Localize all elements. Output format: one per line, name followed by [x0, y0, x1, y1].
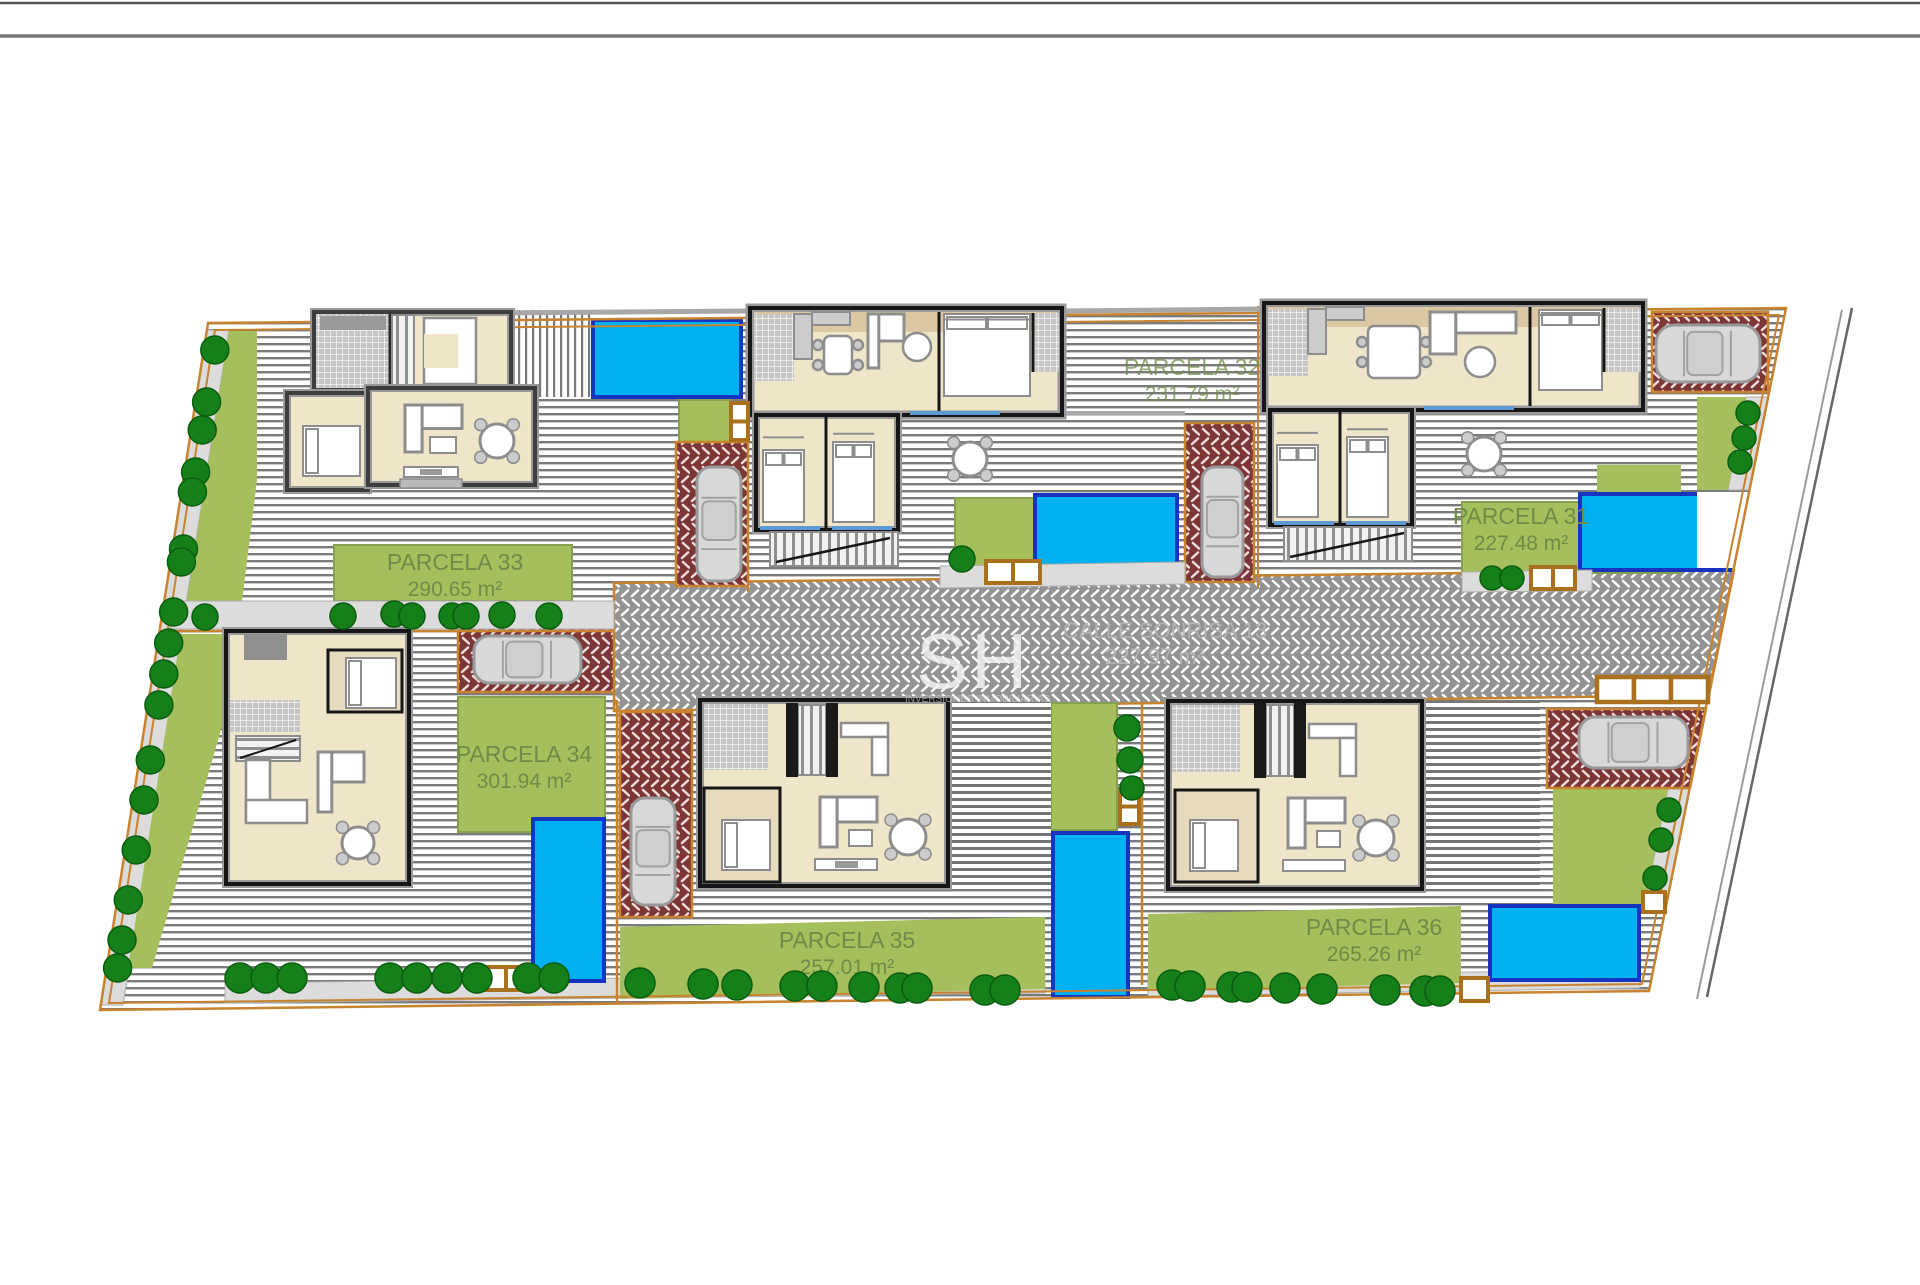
svg-text:PARCELA 36: PARCELA 36	[1306, 914, 1442, 940]
svg-text:INVERSIONES INMOBILIARIAS: INVERSIONES INMOBILIARIAS	[905, 694, 1050, 705]
svg-text:301.94 m²: 301.94 m²	[477, 770, 572, 793]
svg-text:227.97 m²: 227.97 m²	[1105, 644, 1204, 669]
svg-text:265.26 m²: 265.26 m²	[1327, 943, 1422, 966]
svg-text:PARCELA 33: PARCELA 33	[387, 549, 523, 575]
svg-text:231.79 m²: 231.79 m²	[1145, 383, 1240, 406]
svg-text:227.48 m²: 227.48 m²	[1474, 532, 1569, 555]
svg-text:PARCELA 31: PARCELA 31	[1453, 503, 1589, 529]
svg-text:290.65 m²: 290.65 m²	[408, 578, 503, 601]
svg-text:PARCELA 35: PARCELA 35	[779, 927, 915, 953]
svg-text:CALLE SONRISA 13: CALLE SONRISA 13	[1063, 618, 1267, 643]
svg-text:SH: SH	[916, 617, 1030, 705]
svg-text:PARCELA 32: PARCELA 32	[1124, 354, 1260, 380]
svg-text:PARCELA 34: PARCELA 34	[456, 741, 593, 767]
